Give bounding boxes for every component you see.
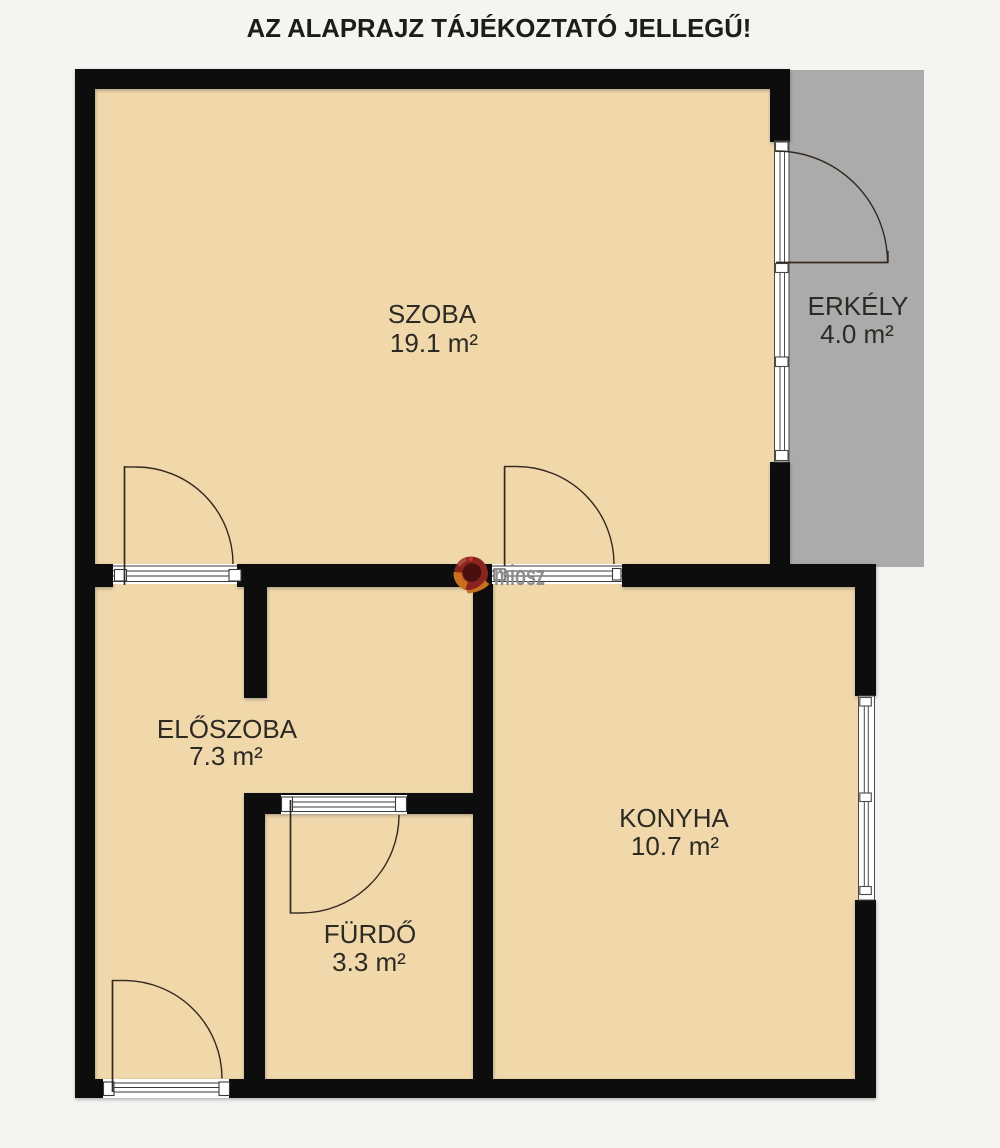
svg-text:10.7 m²: 10.7 m² (631, 831, 719, 861)
svg-text:AZ ALAPRAJZ TÁJÉKOZTATÓ JELLEG: AZ ALAPRAJZ TÁJÉKOZTATÓ JELLEGŰ! (247, 13, 752, 43)
svg-text:ELŐSZOBA: ELŐSZOBA (157, 714, 298, 744)
svg-text:KONYHA: KONYHA (619, 803, 729, 833)
svg-text:19.1 m²: 19.1 m² (390, 328, 478, 358)
svg-text:miosz: miosz (494, 560, 545, 592)
svg-text:4.0 m²: 4.0 m² (820, 319, 894, 349)
svg-text:3.3 m²: 3.3 m² (332, 947, 406, 977)
svg-text:FÜRDŐ: FÜRDŐ (324, 919, 416, 949)
svg-text:SZOBA: SZOBA (388, 299, 477, 329)
svg-text:ERKÉLY: ERKÉLY (808, 291, 909, 321)
svg-text:7.3 m²: 7.3 m² (189, 741, 263, 771)
